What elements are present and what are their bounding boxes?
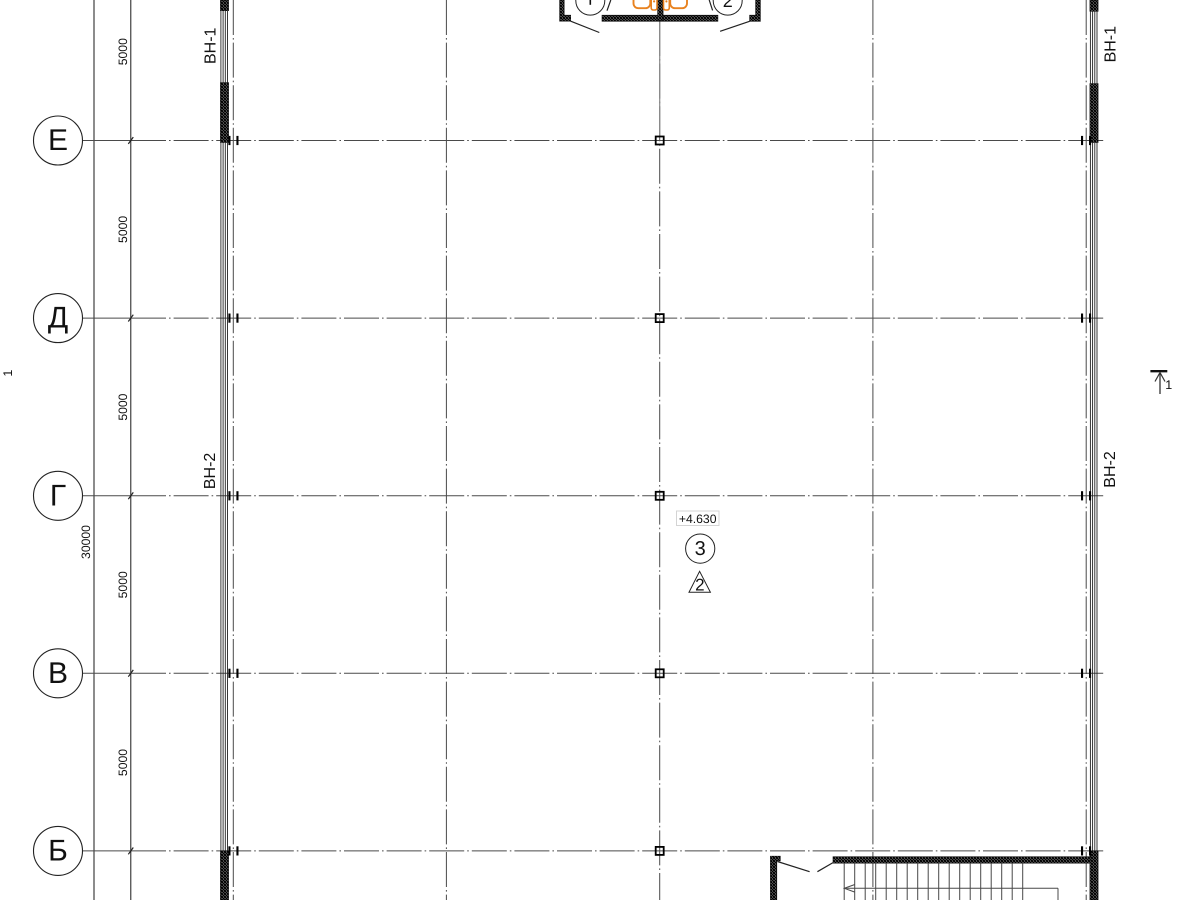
svg-text:Д: Д — [48, 302, 68, 335]
svg-text:5000: 5000 — [116, 216, 130, 243]
svg-text:ВН-1: ВН-1 — [202, 27, 219, 64]
svg-text:30000: 30000 — [79, 525, 93, 559]
svg-text:5000: 5000 — [116, 749, 130, 776]
svg-text:1: 1 — [1165, 378, 1172, 392]
svg-text:Б: Б — [48, 834, 68, 867]
svg-text:3: 3 — [695, 538, 706, 560]
svg-text:+4.630: +4.630 — [679, 512, 717, 526]
svg-text:5000: 5000 — [116, 393, 130, 420]
svg-text:Г: Г — [50, 479, 66, 512]
svg-text:Е: Е — [48, 124, 68, 157]
svg-text:2: 2 — [695, 576, 704, 595]
svg-text:2: 2 — [723, 0, 733, 11]
svg-text:5000: 5000 — [116, 38, 130, 65]
svg-text:5000: 5000 — [116, 571, 130, 598]
svg-text:ВН-2: ВН-2 — [202, 453, 219, 490]
svg-text:В: В — [48, 657, 68, 690]
svg-text:ВН-2: ВН-2 — [1102, 451, 1119, 488]
svg-text:ВН-1: ВН-1 — [1102, 26, 1119, 63]
svg-text:1: 1 — [1, 370, 15, 377]
